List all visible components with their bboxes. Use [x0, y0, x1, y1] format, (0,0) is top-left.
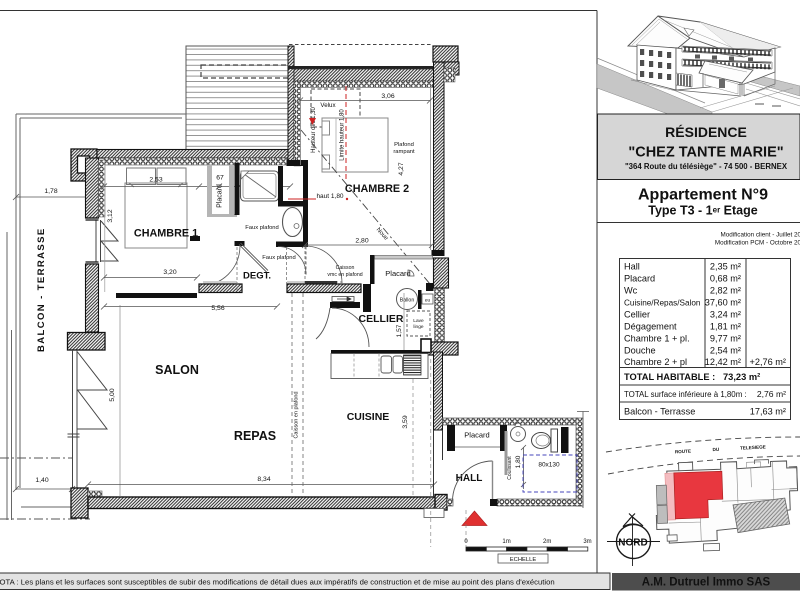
svg-text:CHAMBRE 2: CHAMBRE 2 [345, 183, 409, 195]
svg-text:12,42 m²: 12,42 m² [705, 357, 741, 367]
svg-text:5,56: 5,56 [211, 305, 224, 312]
svg-text:1,57: 1,57 [396, 324, 403, 337]
svg-text:Placard: Placard [624, 274, 655, 284]
svg-text:BALCON - TERRASSE: BALCON - TERRASSE [36, 227, 47, 352]
svg-text:Placard: Placard [217, 184, 224, 208]
svg-text:TOTAL HABITABLE : 73,23 m²: TOTAL HABITABLE : 73,23 m² [624, 372, 760, 382]
svg-text:Appartement N°9: Appartement N°9 [638, 187, 768, 204]
svg-text:Caisson en plafond: Caisson en plafond [294, 391, 300, 438]
svg-text:"CHEZ TANTE MARIE": "CHEZ TANTE MARIE" [628, 145, 783, 161]
svg-text:RÉSIDENCE: RÉSIDENCE [665, 124, 747, 140]
svg-text:Cellier: Cellier [624, 310, 650, 320]
svg-text:Hall: Hall [624, 262, 640, 272]
svg-text:1,78: 1,78 [44, 188, 57, 195]
svg-text:Type T3 - 1er Etage: Type T3 - 1er Etage [648, 204, 757, 218]
svg-text:2m: 2m [543, 539, 551, 545]
svg-text:0,68 m²: 0,68 m² [710, 274, 741, 284]
svg-text:NORD: NORD [618, 538, 647, 549]
svg-text:eu: eu [425, 299, 431, 304]
svg-text:Placard: Placard [385, 269, 410, 278]
svg-text:Balcon - Terrasse: Balcon - Terrasse [624, 407, 695, 417]
svg-text:Faux plafond: Faux plafond [262, 255, 296, 261]
svg-text:9,77 m²: 9,77 m² [710, 334, 741, 344]
svg-text:CUISINE: CUISINE [347, 411, 390, 423]
svg-text:17,63 m²: 17,63 m² [750, 407, 786, 417]
svg-text:NOTA : Les plans et les surfac: NOTA : Les plans et les surfaces sont su… [0, 578, 555, 587]
svg-text:haut 1,80: haut 1,80 [316, 193, 343, 200]
svg-text:Modification client - Juille: Modification client - Juillet 20 [721, 232, 800, 239]
svg-text:1,80: 1,80 [515, 455, 522, 468]
svg-text:Plafond: Plafond [394, 142, 414, 148]
svg-text:Limite hauteur 1,80: Limite hauteur 1,80 [340, 109, 346, 161]
svg-text:Placard: Placard [464, 431, 489, 440]
svg-text:80x130: 80x130 [538, 462, 560, 469]
svg-text:2,35 m²: 2,35 m² [710, 262, 741, 272]
svg-text:Douche: Douche [624, 346, 656, 356]
svg-text:2,54 m²: 2,54 m² [710, 346, 741, 356]
svg-text:CHAMBRE 1: CHAMBRE 1 [134, 228, 198, 240]
svg-text:SALON: SALON [155, 363, 199, 377]
svg-text:linge: linge [413, 324, 423, 330]
svg-text:DU: DU [712, 447, 720, 452]
svg-text:TOTAL surface inférieure à 1,8: TOTAL surface inférieure à 1,80m : [624, 390, 747, 399]
svg-text:2,53: 2,53 [149, 177, 162, 184]
svg-text:4,27: 4,27 [398, 162, 405, 175]
svg-text:Cuisine/Repas/Salon: Cuisine/Repas/Salon [624, 299, 701, 308]
svg-text:DEGT.: DEGT. [243, 271, 271, 282]
svg-text:REPAS: REPAS [234, 429, 276, 443]
svg-text:67: 67 [216, 175, 224, 182]
svg-text:3m: 3m [583, 539, 591, 545]
svg-text:1,81 m²: 1,81 m² [710, 322, 741, 332]
svg-text:1,40: 1,40 [35, 477, 48, 484]
svg-text:Caisson: Caisson [336, 265, 355, 271]
svg-text:Velux: Velux [320, 102, 336, 109]
svg-text:ROUTE: ROUTE [675, 449, 691, 455]
svg-text:Dégagement: Dégagement [624, 322, 677, 332]
svg-text:Coulissant: Coulissant [507, 456, 513, 480]
svg-text:1m: 1m [502, 539, 510, 545]
svg-text:3,59: 3,59 [402, 415, 409, 428]
svg-text:vmc en plafond: vmc en plafond [327, 272, 362, 278]
svg-text:Chambre 2 + pl: Chambre 2 + pl [624, 357, 687, 367]
svg-text:5,00: 5,00 [109, 388, 116, 401]
svg-text:Lave: Lave [413, 318, 424, 324]
svg-text:3,20: 3,20 [163, 269, 176, 276]
svg-text:3,06: 3,06 [381, 93, 394, 100]
svg-text:"364 Route du télésiège" - 74: "364 Route du télésiège" - 74 500 - BERN… [625, 162, 788, 171]
svg-text:3,12: 3,12 [107, 209, 114, 222]
svg-text:rampant: rampant [393, 149, 415, 155]
svg-text:37,60 m²: 37,60 m² [705, 298, 741, 308]
svg-text:A.M. Dutruel Immo SAS: A.M. Dutruel Immo SAS [642, 577, 771, 589]
svg-text:2,76 m²: 2,76 m² [757, 389, 786, 399]
svg-text:CELLIER: CELLIER [359, 313, 404, 325]
svg-text:Modification PCM - Octobre 2: Modification PCM - Octobre 20 [715, 240, 800, 247]
svg-text:8,34: 8,34 [257, 476, 270, 483]
svg-text:Ballon: Ballon [400, 298, 415, 304]
svg-text:Faux plafond: Faux plafond [245, 225, 279, 231]
svg-text:+2,76 m²: +2,76 m² [749, 357, 786, 367]
svg-text:Chambre 1 + pl.: Chambre 1 + pl. [624, 334, 690, 344]
svg-text:ECHELLE: ECHELLE [510, 557, 537, 563]
svg-text:3,24 m²: 3,24 m² [710, 310, 741, 320]
svg-text:2,82 m²: 2,82 m² [710, 286, 741, 296]
svg-text:2,80: 2,80 [355, 238, 368, 245]
svg-text:Wc: Wc [624, 286, 638, 296]
